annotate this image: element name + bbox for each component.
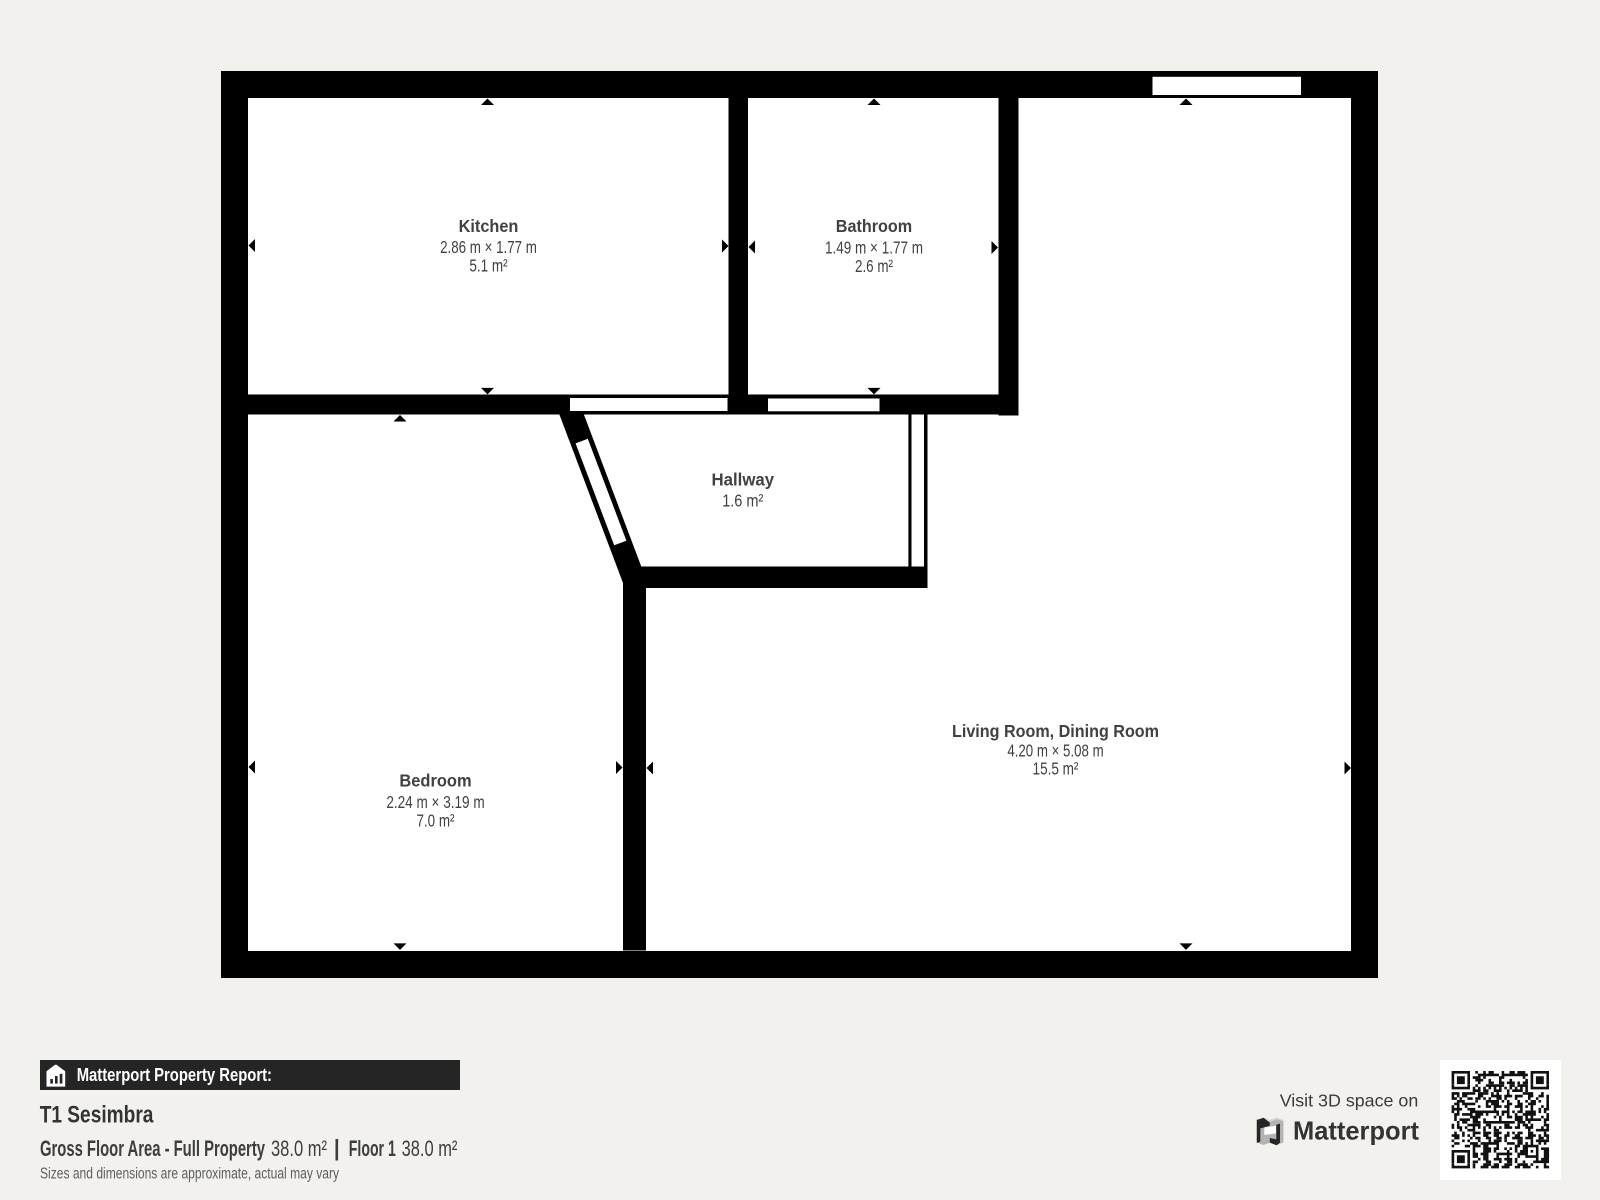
svg-text:1.6 m²: 1.6 m² [722,490,763,510]
svg-text:Matterport Property Report:: Matterport Property Report: [77,1065,272,1085]
svg-text:2.86 m × 1.77 m: 2.86 m × 1.77 m [440,237,537,257]
svg-text:Bathroom: Bathroom [836,216,912,236]
svg-text:15.5 m²: 15.5 m² [1033,759,1079,779]
svg-text:1.49 m × 1.77 m: 1.49 m × 1.77 m [825,238,923,258]
svg-text:Hallway: Hallway [712,470,775,490]
svg-text:Gross Floor Area - Full Proper: Gross Floor Area - Full Property [40,1136,265,1161]
svg-text:5.1 m²: 5.1 m² [469,256,507,276]
svg-text:Kitchen: Kitchen [459,216,519,236]
svg-text:2.6 m²: 2.6 m² [855,256,893,276]
svg-text:4.20 m × 5.08 m: 4.20 m × 5.08 m [1007,741,1103,761]
svg-text:2.24 m × 3.19 m: 2.24 m × 3.19 m [386,792,484,812]
svg-text:Bedroom: Bedroom [399,771,471,791]
svg-text:Living Room, Dining Room: Living Room, Dining Room [952,721,1159,741]
svg-text:38.0 m²: 38.0 m² [271,1136,327,1161]
svg-text:Visit 3D space on: Visit 3D space on [1280,1090,1419,1110]
svg-text:Floor 1: Floor 1 [349,1136,396,1161]
svg-text:T1 Sesimbra: T1 Sesimbra [40,1102,154,1129]
svg-text:Sizes and dimensions are appro: Sizes and dimensions are approximate, ac… [40,1165,339,1182]
svg-text:38.0 m²: 38.0 m² [402,1136,458,1161]
svg-text:Matterport: Matterport [1293,1118,1419,1146]
svg-text:7.0 m²: 7.0 m² [417,810,455,830]
